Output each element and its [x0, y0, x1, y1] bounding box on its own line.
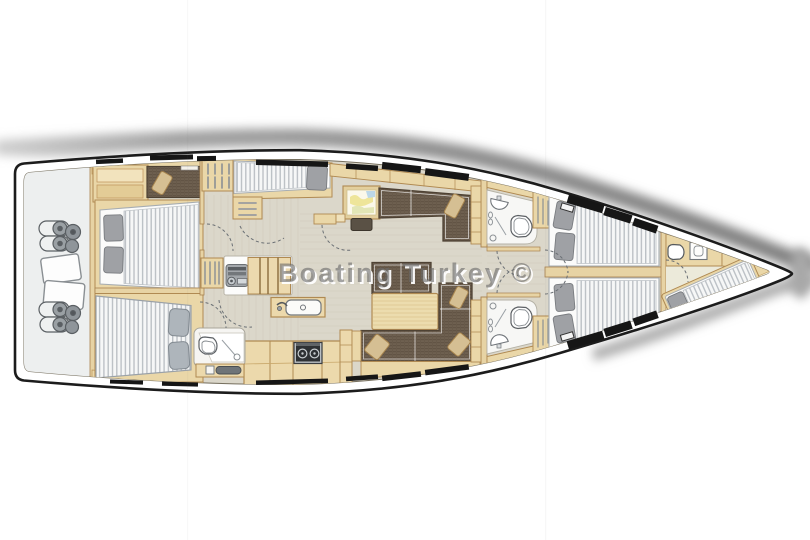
svg-text:Boating Turkey ©: Boating Turkey © — [278, 258, 534, 288]
